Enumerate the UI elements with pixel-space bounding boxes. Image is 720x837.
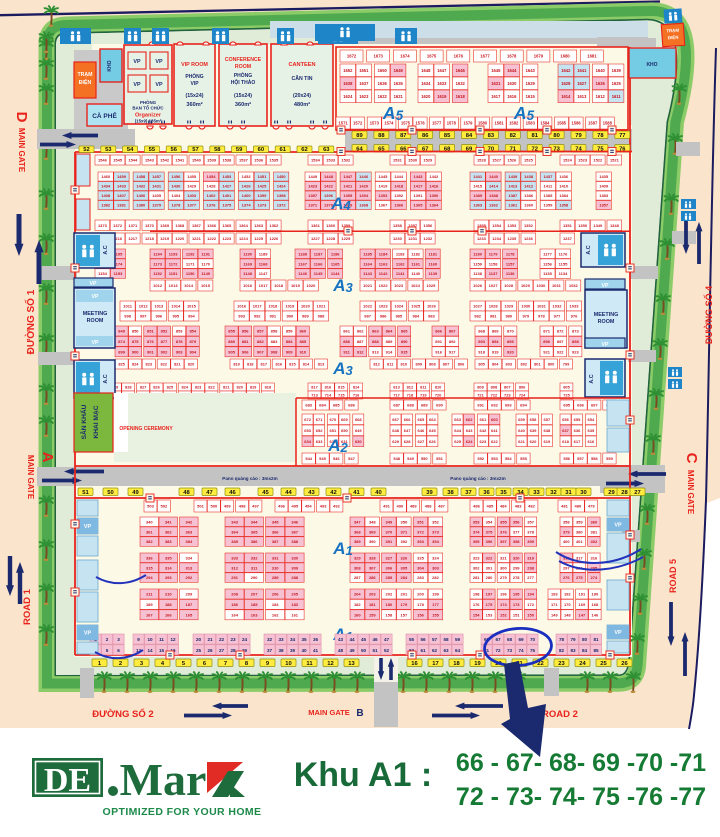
svg-text:61: 61: [279, 147, 286, 153]
svg-text:170: 170: [564, 602, 571, 607]
svg-text:400: 400: [563, 539, 570, 544]
svg-text:70: 70: [530, 637, 536, 642]
svg-text:1646: 1646: [456, 68, 466, 73]
svg-text:713: 713: [311, 393, 318, 398]
svg-text:638: 638: [544, 428, 551, 433]
svg-text:868: 868: [478, 329, 485, 334]
svg-text:691: 691: [477, 403, 484, 408]
svg-text:725: 725: [563, 393, 570, 398]
svg-text:42: 42: [330, 490, 336, 496]
svg-text:1372: 1372: [113, 223, 123, 228]
svg-text:46: 46: [229, 490, 236, 496]
svg-text:1223: 1223: [222, 236, 232, 241]
svg-text:1425: 1425: [257, 184, 267, 189]
svg-text:629: 629: [392, 439, 399, 444]
svg-text:1651: 1651: [359, 68, 369, 73]
svg-text:197: 197: [486, 592, 493, 597]
svg-text:PHÒNG: PHÒNG: [234, 71, 252, 79]
svg-text:882: 882: [257, 339, 264, 344]
svg-text:24: 24: [242, 637, 248, 642]
svg-text:1022: 1022: [363, 304, 373, 309]
svg-text:660: 660: [491, 417, 498, 422]
svg-text:348: 348: [369, 519, 376, 524]
svg-text:498: 498: [239, 504, 246, 509]
svg-text:47: 47: [384, 637, 390, 642]
svg-text:810: 810: [435, 385, 442, 390]
svg-text:2: 2: [119, 661, 122, 667]
svg-text:987: 987: [364, 314, 371, 319]
svg-text:52: 52: [384, 648, 390, 653]
svg-text:1366: 1366: [207, 223, 217, 228]
svg-text:616: 616: [588, 439, 595, 444]
svg-text:912: 912: [357, 349, 364, 354]
svg-text:1426: 1426: [242, 184, 252, 189]
svg-text:997: 997: [140, 314, 147, 319]
svg-text:1673: 1673: [374, 54, 384, 59]
svg-text:1156: 1156: [543, 261, 552, 266]
svg-text:VIP ROOM: VIP ROOM: [181, 62, 208, 68]
svg-text:1020: 1020: [301, 304, 311, 309]
svg-text:1218: 1218: [145, 236, 155, 241]
svg-text:341: 341: [165, 519, 172, 524]
svg-text:887: 887: [357, 339, 364, 344]
svg-text:402: 402: [591, 539, 598, 544]
svg-text:ĐƯỜNG SỐ 1: ĐƯỜNG SỐ 1: [23, 289, 37, 354]
svg-text:1448: 1448: [324, 174, 334, 179]
svg-text:622: 622: [491, 439, 498, 444]
svg-text:306: 306: [386, 565, 393, 570]
svg-text:814: 814: [353, 385, 360, 390]
svg-text:661: 661: [480, 417, 487, 422]
svg-text:656: 656: [562, 417, 569, 422]
svg-text:895: 895: [507, 339, 514, 344]
svg-text:80: 80: [553, 133, 559, 139]
svg-text:289: 289: [272, 575, 279, 580]
svg-text:1585: 1585: [557, 121, 567, 126]
svg-text:1394: 1394: [359, 193, 369, 198]
svg-text:VP: VP: [602, 283, 609, 289]
svg-text:990: 990: [286, 314, 293, 319]
svg-text:372: 372: [417, 529, 424, 534]
svg-text:1620: 1620: [421, 94, 431, 99]
svg-text:1024: 1024: [394, 304, 404, 309]
svg-text:301: 301: [486, 565, 493, 570]
svg-text:211: 211: [146, 592, 153, 597]
svg-text:493: 493: [320, 504, 327, 509]
svg-text:179: 179: [401, 602, 408, 607]
svg-text:1447: 1447: [343, 174, 353, 179]
svg-text:1362: 1362: [489, 203, 499, 208]
svg-text:850: 850: [132, 329, 139, 334]
svg-text:KHAI MẠC: KHAI MẠC: [93, 405, 100, 438]
svg-text:83: 83: [570, 648, 576, 653]
svg-text:642: 642: [480, 428, 487, 433]
svg-text:54: 54: [127, 147, 134, 153]
svg-text:72: 72: [495, 648, 501, 653]
svg-text:392: 392: [401, 539, 408, 544]
svg-text:11: 11: [159, 637, 164, 642]
svg-text:351: 351: [417, 519, 424, 524]
svg-text:305: 305: [401, 565, 408, 570]
svg-text:20: 20: [196, 637, 202, 642]
svg-text:196: 196: [500, 592, 507, 597]
svg-text:282: 282: [432, 575, 439, 580]
svg-text:1640: 1640: [596, 68, 606, 73]
svg-text:869: 869: [492, 329, 499, 334]
svg-text:1378: 1378: [171, 203, 181, 208]
svg-text:1538: 1538: [222, 158, 232, 163]
svg-text:645: 645: [429, 428, 436, 433]
svg-text:1136: 1136: [506, 271, 515, 276]
svg-text:1430: 1430: [171, 184, 181, 189]
svg-text:1031: 1031: [552, 283, 562, 288]
svg-text:310: 310: [272, 565, 279, 570]
svg-text:1409: 1409: [599, 184, 609, 189]
svg-text:44: 44: [349, 637, 355, 642]
svg-text:628: 628: [404, 439, 411, 444]
svg-text:1159: 1159: [473, 261, 482, 266]
svg-text:ROAD 1: ROAD 1: [22, 588, 33, 625]
svg-text:979: 979: [522, 314, 529, 319]
svg-text:1182: 1182: [411, 251, 420, 256]
svg-text:822: 822: [208, 385, 215, 390]
svg-text:387: 387: [272, 539, 279, 544]
svg-text:1354: 1354: [492, 223, 502, 228]
svg-text:PHÒNG: PHÒNG: [140, 100, 157, 105]
svg-text:1151: 1151: [169, 271, 178, 276]
svg-text:872: 872: [557, 329, 564, 334]
svg-text:59: 59: [236, 147, 243, 153]
svg-text:913: 913: [372, 349, 379, 354]
svg-text:1192: 1192: [186, 251, 195, 256]
svg-text:1415: 1415: [473, 184, 483, 189]
svg-text:489: 489: [410, 504, 417, 509]
svg-text:1147: 1147: [259, 271, 268, 276]
svg-text:MAIN GATE: MAIN GATE: [308, 708, 350, 717]
svg-text:1011: 1011: [123, 304, 132, 309]
svg-text:555: 555: [520, 456, 527, 461]
svg-text:651: 651: [330, 428, 337, 433]
svg-text:1436: 1436: [559, 174, 569, 179]
svg-text:1618: 1618: [456, 94, 466, 99]
svg-text:69: 69: [518, 637, 524, 642]
svg-text:279: 279: [500, 575, 507, 580]
svg-text:1450: 1450: [277, 174, 287, 179]
svg-text:1022: 1022: [379, 283, 389, 288]
svg-text:360m²: 360m²: [235, 101, 251, 108]
svg-text:487: 487: [438, 504, 445, 509]
svg-text:1016: 1016: [243, 283, 253, 288]
svg-text:66 - 67- 68- 69 -70 -71: 66 - 67- 68- 69 -70 -71: [456, 749, 706, 777]
svg-text:1445: 1445: [378, 174, 388, 179]
svg-text:315: 315: [146, 565, 153, 570]
svg-text:1179: 1179: [489, 251, 498, 256]
svg-text:686: 686: [348, 403, 355, 408]
svg-text:633: 633: [316, 439, 323, 444]
svg-text:1650: 1650: [378, 68, 388, 73]
svg-text:275: 275: [576, 575, 583, 580]
svg-text:898: 898: [572, 339, 579, 344]
svg-text:1135: 1135: [543, 271, 552, 276]
svg-text:2: 2: [106, 637, 109, 642]
svg-text:1161: 1161: [411, 261, 420, 266]
svg-text:312: 312: [231, 565, 238, 570]
svg-text:57: 57: [192, 147, 198, 153]
svg-text:347: 347: [354, 519, 361, 524]
svg-text:25: 25: [196, 648, 202, 653]
svg-text:36: 36: [483, 490, 490, 496]
svg-text:A.C: A.C: [103, 245, 109, 254]
svg-text:800: 800: [548, 362, 555, 367]
svg-text:1410: 1410: [559, 184, 569, 189]
svg-text:1632: 1632: [456, 81, 466, 86]
svg-text:853: 853: [176, 329, 183, 334]
svg-text:1676: 1676: [454, 54, 464, 59]
svg-text:806: 806: [458, 362, 465, 367]
svg-text:1528: 1528: [477, 158, 487, 163]
svg-text:367: 367: [291, 529, 298, 534]
svg-text:CĂN TIN: CĂN TIN: [291, 75, 312, 82]
svg-text:494: 494: [305, 504, 312, 509]
svg-text:371: 371: [401, 529, 408, 534]
svg-text:499: 499: [224, 504, 231, 509]
svg-text:1188: 1188: [298, 251, 307, 256]
svg-text:1674: 1674: [400, 54, 410, 59]
svg-text:46: 46: [372, 637, 378, 642]
svg-text:87: 87: [400, 133, 406, 139]
svg-text:823: 823: [146, 362, 153, 367]
svg-text:1149: 1149: [201, 271, 210, 276]
svg-text:1379: 1379: [152, 203, 162, 208]
svg-text:190: 190: [592, 592, 599, 597]
svg-text:914: 914: [386, 349, 393, 354]
svg-text:856: 856: [242, 329, 249, 334]
svg-text:807: 807: [504, 385, 511, 390]
svg-text:623: 623: [480, 439, 487, 444]
svg-text:84: 84: [466, 133, 473, 139]
svg-text:687: 687: [393, 403, 400, 408]
svg-text:815: 815: [338, 385, 345, 390]
svg-text:554: 554: [505, 456, 512, 461]
svg-text:877: 877: [161, 339, 168, 344]
svg-text:1368: 1368: [359, 203, 369, 208]
svg-text:377: 377: [513, 529, 520, 534]
svg-text:151: 151: [513, 612, 520, 617]
svg-text:63: 63: [323, 147, 330, 153]
svg-text:ROAD 2: ROAD 2: [542, 709, 578, 720]
svg-text:888: 888: [372, 339, 379, 344]
svg-text:1432: 1432: [136, 184, 146, 189]
svg-text:1163: 1163: [379, 261, 388, 266]
svg-text:1421: 1421: [343, 184, 353, 189]
svg-text:ROAD 5: ROAD 5: [668, 559, 678, 593]
svg-text:983: 983: [428, 314, 435, 319]
svg-text:CANTEEN: CANTEEN: [288, 62, 315, 68]
svg-text:A.C: A.C: [103, 374, 109, 383]
svg-text:1351: 1351: [563, 223, 573, 228]
svg-text:998: 998: [124, 314, 131, 319]
svg-text:1428: 1428: [207, 184, 217, 189]
svg-text:1170: 1170: [201, 261, 210, 266]
svg-text:617: 617: [574, 439, 581, 444]
svg-text:A: A: [39, 452, 56, 463]
svg-text:1397: 1397: [308, 193, 318, 198]
svg-text:821: 821: [174, 362, 181, 367]
svg-text:198: 198: [473, 592, 480, 597]
svg-text:363: 363: [186, 529, 193, 534]
svg-text:1365: 1365: [222, 223, 232, 228]
svg-text:1371: 1371: [308, 203, 318, 208]
svg-text:1527: 1527: [492, 158, 502, 163]
svg-text:64: 64: [455, 648, 461, 653]
svg-text:ĐIỆN: ĐIỆN: [668, 35, 679, 41]
svg-text:1454: 1454: [207, 174, 217, 179]
svg-text:391: 391: [386, 539, 393, 544]
svg-text:53: 53: [105, 147, 112, 153]
svg-text:1641: 1641: [577, 68, 587, 73]
svg-text:62: 62: [432, 648, 438, 653]
svg-text:388: 388: [291, 539, 298, 544]
svg-text:550: 550: [421, 456, 428, 461]
svg-text:ROOM: ROOM: [235, 64, 251, 70]
svg-text:84: 84: [582, 648, 588, 653]
svg-text:919: 919: [492, 349, 499, 354]
svg-text:193: 193: [551, 592, 558, 597]
svg-text:553: 553: [491, 456, 498, 461]
svg-text:47: 47: [206, 490, 212, 496]
svg-text:(15x24): (15x24): [234, 93, 252, 99]
svg-text:188: 188: [165, 602, 172, 607]
svg-text:KHO: KHO: [107, 60, 113, 71]
svg-text:1438: 1438: [524, 174, 534, 179]
svg-text:TRẠM: TRẠM: [78, 72, 93, 78]
svg-text:26: 26: [207, 648, 213, 653]
svg-text:1230: 1230: [393, 236, 403, 241]
svg-text:1540: 1540: [192, 158, 202, 163]
svg-text:817: 817: [311, 385, 318, 390]
svg-text:MEETING: MEETING: [83, 311, 108, 317]
svg-text:1385: 1385: [543, 193, 553, 198]
svg-text:385: 385: [231, 539, 238, 544]
svg-text:200: 200: [417, 592, 424, 597]
svg-text:1435: 1435: [599, 174, 609, 179]
svg-text:32: 32: [550, 490, 556, 496]
svg-text:BAN TỔ CHỨC: BAN TỔ CHỨC: [132, 106, 164, 111]
svg-text:801: 801: [534, 362, 541, 367]
svg-text:12: 12: [170, 637, 176, 642]
svg-text:1408: 1408: [101, 193, 111, 198]
svg-text:1391: 1391: [414, 193, 424, 198]
svg-text:55: 55: [409, 637, 415, 642]
svg-text:56: 56: [420, 637, 426, 642]
svg-text:1576: 1576: [416, 121, 426, 126]
svg-text:374: 374: [473, 529, 480, 534]
svg-text:370: 370: [386, 529, 393, 534]
svg-text:(20x24): (20x24): [293, 93, 311, 99]
svg-text:491: 491: [383, 504, 390, 509]
svg-text:1166: 1166: [314, 261, 323, 266]
svg-text:886: 886: [343, 339, 350, 344]
svg-text:335: 335: [165, 555, 172, 560]
svg-text:482: 482: [528, 504, 535, 509]
svg-text:1191: 1191: [201, 251, 210, 256]
svg-text:83: 83: [488, 133, 495, 139]
svg-text:714: 714: [325, 393, 332, 398]
svg-text:393: 393: [417, 539, 424, 544]
svg-text:31: 31: [565, 490, 572, 496]
svg-text:6: 6: [117, 648, 120, 653]
svg-text:1181: 1181: [428, 251, 437, 256]
svg-text:1219: 1219: [160, 236, 170, 241]
svg-text:1372: 1372: [277, 203, 287, 208]
svg-text:340: 340: [146, 519, 153, 524]
svg-text:854: 854: [189, 329, 196, 334]
svg-text:39: 39: [426, 490, 433, 496]
svg-text:A.C: A.C: [589, 374, 595, 383]
svg-text:665: 665: [418, 417, 425, 422]
svg-text:1012: 1012: [139, 304, 149, 309]
svg-text:359: 359: [576, 519, 583, 524]
svg-text:1626: 1626: [596, 81, 606, 86]
svg-text:485: 485: [487, 504, 494, 509]
svg-text:1377: 1377: [187, 203, 197, 208]
svg-text:1028: 1028: [489, 304, 499, 309]
svg-text:1369: 1369: [160, 223, 170, 228]
svg-text:206: 206: [272, 592, 279, 597]
svg-text:1220: 1220: [175, 236, 185, 241]
svg-text:1018: 1018: [268, 304, 278, 309]
svg-text:43: 43: [308, 490, 315, 496]
svg-text:1018: 1018: [274, 283, 284, 288]
svg-text:299: 299: [513, 565, 520, 570]
svg-text:559: 559: [606, 456, 613, 461]
svg-text:1639: 1639: [612, 68, 622, 73]
svg-text:873: 873: [572, 329, 579, 334]
svg-text:1019: 1019: [291, 283, 301, 288]
svg-text:22: 22: [219, 637, 225, 642]
svg-text:1189: 1189: [259, 251, 268, 256]
svg-text:1449: 1449: [308, 174, 318, 179]
svg-text:875: 875: [132, 339, 139, 344]
svg-text:885: 885: [299, 339, 306, 344]
svg-text:Khu A1 :: Khu A1 :: [294, 756, 433, 794]
svg-text:51: 51: [82, 490, 89, 496]
svg-text:859: 859: [286, 329, 293, 334]
svg-text:816: 816: [325, 385, 332, 390]
svg-text:654: 654: [588, 417, 595, 422]
svg-text:722: 722: [491, 393, 498, 398]
svg-text:1382: 1382: [101, 203, 111, 208]
svg-text:860: 860: [299, 329, 306, 334]
svg-text:1541: 1541: [175, 158, 185, 163]
svg-text:1374: 1374: [242, 203, 252, 208]
svg-text:386: 386: [251, 539, 258, 544]
svg-text:16: 16: [411, 661, 418, 667]
svg-text:1225: 1225: [254, 236, 264, 241]
svg-text:ĐIỆN: ĐIỆN: [79, 78, 92, 86]
svg-text:50: 50: [107, 490, 113, 496]
svg-text:1012: 1012: [153, 283, 163, 288]
svg-text:667: 667: [392, 417, 399, 422]
svg-text:1221: 1221: [192, 236, 202, 241]
svg-text:72 - 73- 74- 75 -76 -77: 72 - 73- 74- 75 -76 -77: [456, 783, 706, 811]
svg-text:655: 655: [574, 417, 581, 422]
svg-text:302: 302: [473, 565, 480, 570]
svg-text:1573: 1573: [370, 121, 380, 126]
svg-text:799: 799: [563, 362, 570, 367]
svg-text:910: 910: [299, 349, 306, 354]
svg-text:672: 672: [304, 417, 311, 422]
